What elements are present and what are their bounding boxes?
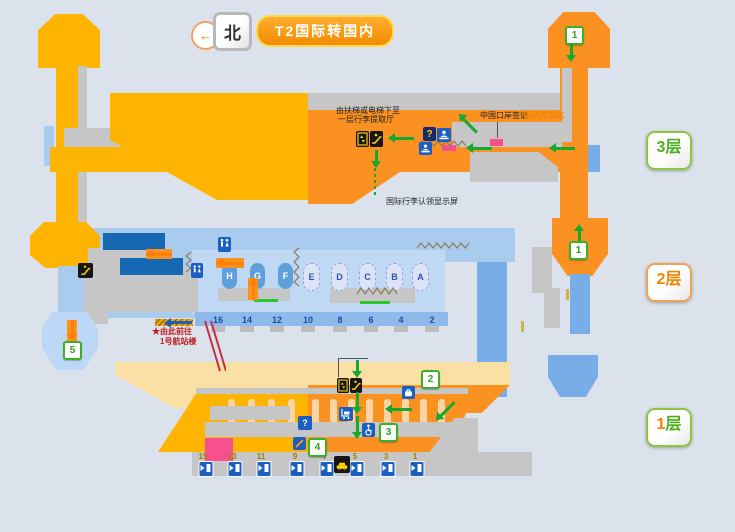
route-arrow-up <box>574 224 584 242</box>
jet-bridge <box>270 326 284 332</box>
f1-service-block <box>210 406 290 420</box>
escalator-icon <box>370 131 383 147</box>
inquiry-icon: ? <box>298 416 312 430</box>
jet-bridge <box>425 326 439 332</box>
marker-number: 1 <box>576 245 582 256</box>
exit-number: 13 <box>228 452 237 461</box>
exit-door-icon <box>199 461 214 477</box>
to-t1-arrow <box>164 318 192 327</box>
f3-china-visa-label: 中国口岸签证 <box>480 111 528 121</box>
f3-hall-west <box>110 93 308 200</box>
route-arrow-down <box>352 416 362 439</box>
immigration-counter-icon <box>419 142 432 155</box>
exit-number: 11 <box>257 452 265 461</box>
information-question-icon: ? <box>423 127 436 141</box>
route-arrow-down <box>352 392 362 414</box>
f3-note-line2: 一层行李提取厅 <box>328 115 394 125</box>
escalator-icon <box>78 263 93 278</box>
marker-number: 3 <box>386 427 392 438</box>
elevator-icon <box>356 131 369 147</box>
f2-escalator-bank <box>103 233 165 250</box>
gate-number: 4 <box>398 315 403 325</box>
baggage-icon <box>402 386 415 399</box>
gate-F: F <box>278 263 293 289</box>
gate-number: 6 <box>368 315 373 325</box>
flow-arrow-left <box>146 249 172 259</box>
back-arrow-glyph: ← <box>199 28 212 43</box>
shuttle-arrow-down <box>67 320 77 341</box>
elevator-icon <box>337 378 349 393</box>
gate-letter: A <box>417 272 424 282</box>
visa-leader-line <box>497 122 498 138</box>
escalator-icon <box>350 378 362 393</box>
restroom-icon <box>191 263 203 278</box>
f3-right-pier-corridor <box>562 68 572 142</box>
question-glyph: ? <box>426 129 432 140</box>
f3-right-apron <box>588 145 600 172</box>
route-arrow-left <box>388 133 414 143</box>
floor-3-label: 3层 <box>648 133 690 163</box>
f3-left-pier-corridor <box>78 66 87 128</box>
gate-D: D <box>331 263 348 291</box>
route-marker-1-f2: 1 <box>569 241 588 260</box>
jet-bridge <box>364 326 378 332</box>
kiosk-marker <box>521 321 524 332</box>
immigration-counter-icon <box>437 128 451 142</box>
jet-bridge <box>301 326 315 332</box>
route-dashed-line <box>374 168 376 198</box>
exit-door-icon <box>320 461 335 477</box>
north-compass-button[interactable]: 北 <box>213 12 252 51</box>
marker-number: 4 <box>315 442 321 453</box>
route-arrow-down <box>566 44 576 62</box>
flow-arrow-left <box>216 258 244 268</box>
f2-escalator-bank <box>120 258 183 275</box>
queue-line <box>292 247 301 287</box>
gate-letter: B <box>391 272 398 282</box>
f3-left-pier-corridor <box>78 170 87 228</box>
to-t1-line2: 1号航站楼 <box>160 337 196 347</box>
floor-2-label: 2层 <box>648 265 690 295</box>
route-arrow-down <box>371 150 381 168</box>
f3-remote-arrival-label: 远机位到达 <box>524 111 564 121</box>
page-title: T2国际转国内 <box>256 15 394 47</box>
route-arrow-down <box>352 360 362 378</box>
gate-letter: E <box>308 272 314 282</box>
exit-door-icon <box>350 461 365 477</box>
exit-number: 5 <box>353 452 357 461</box>
exit-number: 3 <box>384 452 388 461</box>
exit-door-icon <box>257 461 272 477</box>
floor-2-button[interactable]: 2层 <box>646 263 692 302</box>
f2-customs-channel <box>360 301 390 304</box>
marker-number: 2 <box>428 374 434 385</box>
jet-bridge <box>394 326 408 332</box>
exit-number: 9 <box>293 452 297 461</box>
queue-line <box>416 241 470 250</box>
f2-right-apron <box>570 274 590 334</box>
f2-gate-number-band <box>195 312 448 326</box>
route-arrow-left <box>385 404 412 414</box>
question-glyph: ? <box>302 418 308 428</box>
t1-road-lines <box>200 320 226 372</box>
gate-letter: F <box>283 271 289 281</box>
wheelchair-accessibility-icon <box>362 423 375 437</box>
flow-arrow-up <box>248 278 258 300</box>
marker-number: 1 <box>572 30 578 41</box>
floor-1-button[interactable]: 1层 <box>646 408 692 447</box>
gate-number: 2 <box>429 315 434 325</box>
exit-number: 15 <box>199 452 208 461</box>
jet-bridge <box>240 326 254 332</box>
leader-line <box>338 358 368 359</box>
route-marker-4: 4 <box>308 438 327 457</box>
north-label: 北 <box>224 19 241 44</box>
route-marker-2: 2 <box>421 370 440 389</box>
gate-letter: D <box>336 272 343 282</box>
route-marker-3: 3 <box>379 423 398 442</box>
exit-door-icon <box>410 461 425 477</box>
exit-door-icon <box>381 461 396 477</box>
gate-letter: H <box>226 271 233 281</box>
gate-number: 8 <box>337 315 342 325</box>
f1-corridor <box>205 422 463 437</box>
floor-3-button[interactable]: 3层 <box>646 131 692 170</box>
f2-right-corridor <box>532 247 552 293</box>
queue-line <box>356 285 400 296</box>
floor-1-label: 1层 <box>648 410 690 440</box>
f2-right-corridor <box>544 288 560 328</box>
route-arrow-left <box>549 143 575 153</box>
taxi-icon <box>334 456 350 473</box>
exit-door-icon <box>228 461 243 477</box>
luggage-cart-icon <box>339 407 353 421</box>
kiosk-marker <box>566 289 569 300</box>
f3-baggage-screen-label: 国际行李认领显示屏 <box>386 197 458 207</box>
route-marker-1-f3: 1 <box>565 26 584 45</box>
gate-number: 10 <box>303 315 313 325</box>
route-arrow-left <box>466 143 492 153</box>
restroom-icon <box>218 237 231 252</box>
gate-A: A <box>412 263 429 291</box>
exit-number: 1 <box>413 452 417 461</box>
terminal-map: ← 北 T2国际转国内 3层 2层 1层 <box>0 0 735 532</box>
to-t1-line1: ★由此前往 <box>152 327 192 337</box>
gate-number: 14 <box>242 315 252 325</box>
leader-line <box>338 358 339 377</box>
jet-bridge <box>333 326 347 332</box>
exit-door-icon <box>290 461 305 477</box>
gate-number: 12 <box>272 315 282 325</box>
marker-number: 5 <box>70 345 76 356</box>
f1-right-apron-pod <box>548 355 598 397</box>
gate-E: E <box>303 263 320 291</box>
title-text: T2国际转国内 <box>275 21 375 41</box>
shuttle-marker-5: 5 <box>63 341 82 360</box>
transfer-icon <box>293 437 306 450</box>
gate-letter: C <box>364 272 371 282</box>
